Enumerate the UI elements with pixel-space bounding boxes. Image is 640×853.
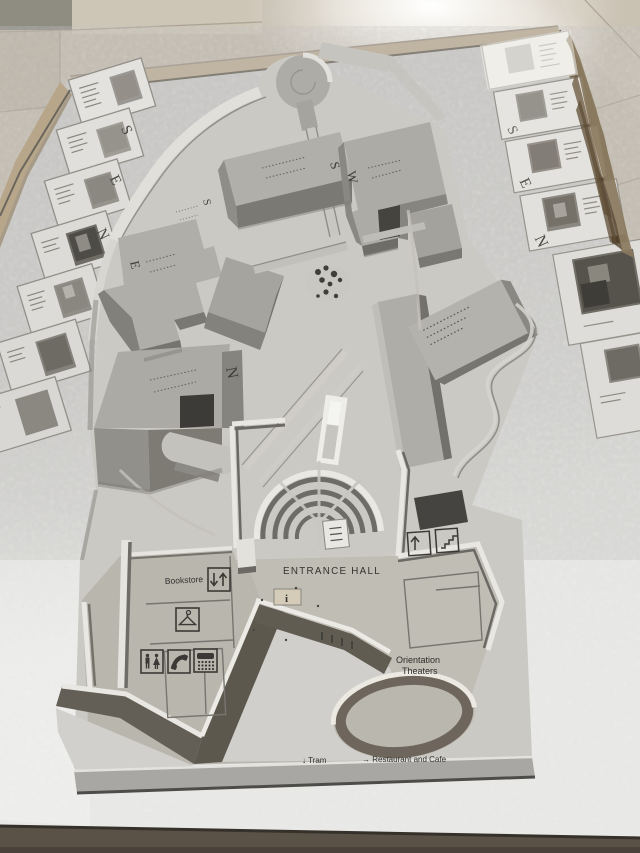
svg-text:Orientation: Orientation	[396, 655, 440, 665]
svg-text:Theaters: Theaters	[402, 666, 438, 676]
svg-text:i: i	[285, 593, 288, 605]
svg-text:→ Restaurant and Cafe: → Restaurant and Cafe	[362, 755, 447, 764]
svg-text:↓ Tram: ↓ Tram	[302, 756, 327, 765]
svg-text:Bookstore: Bookstore	[165, 574, 204, 586]
svg-text:ENTRANCE HALL: ENTRANCE HALL	[283, 566, 381, 577]
